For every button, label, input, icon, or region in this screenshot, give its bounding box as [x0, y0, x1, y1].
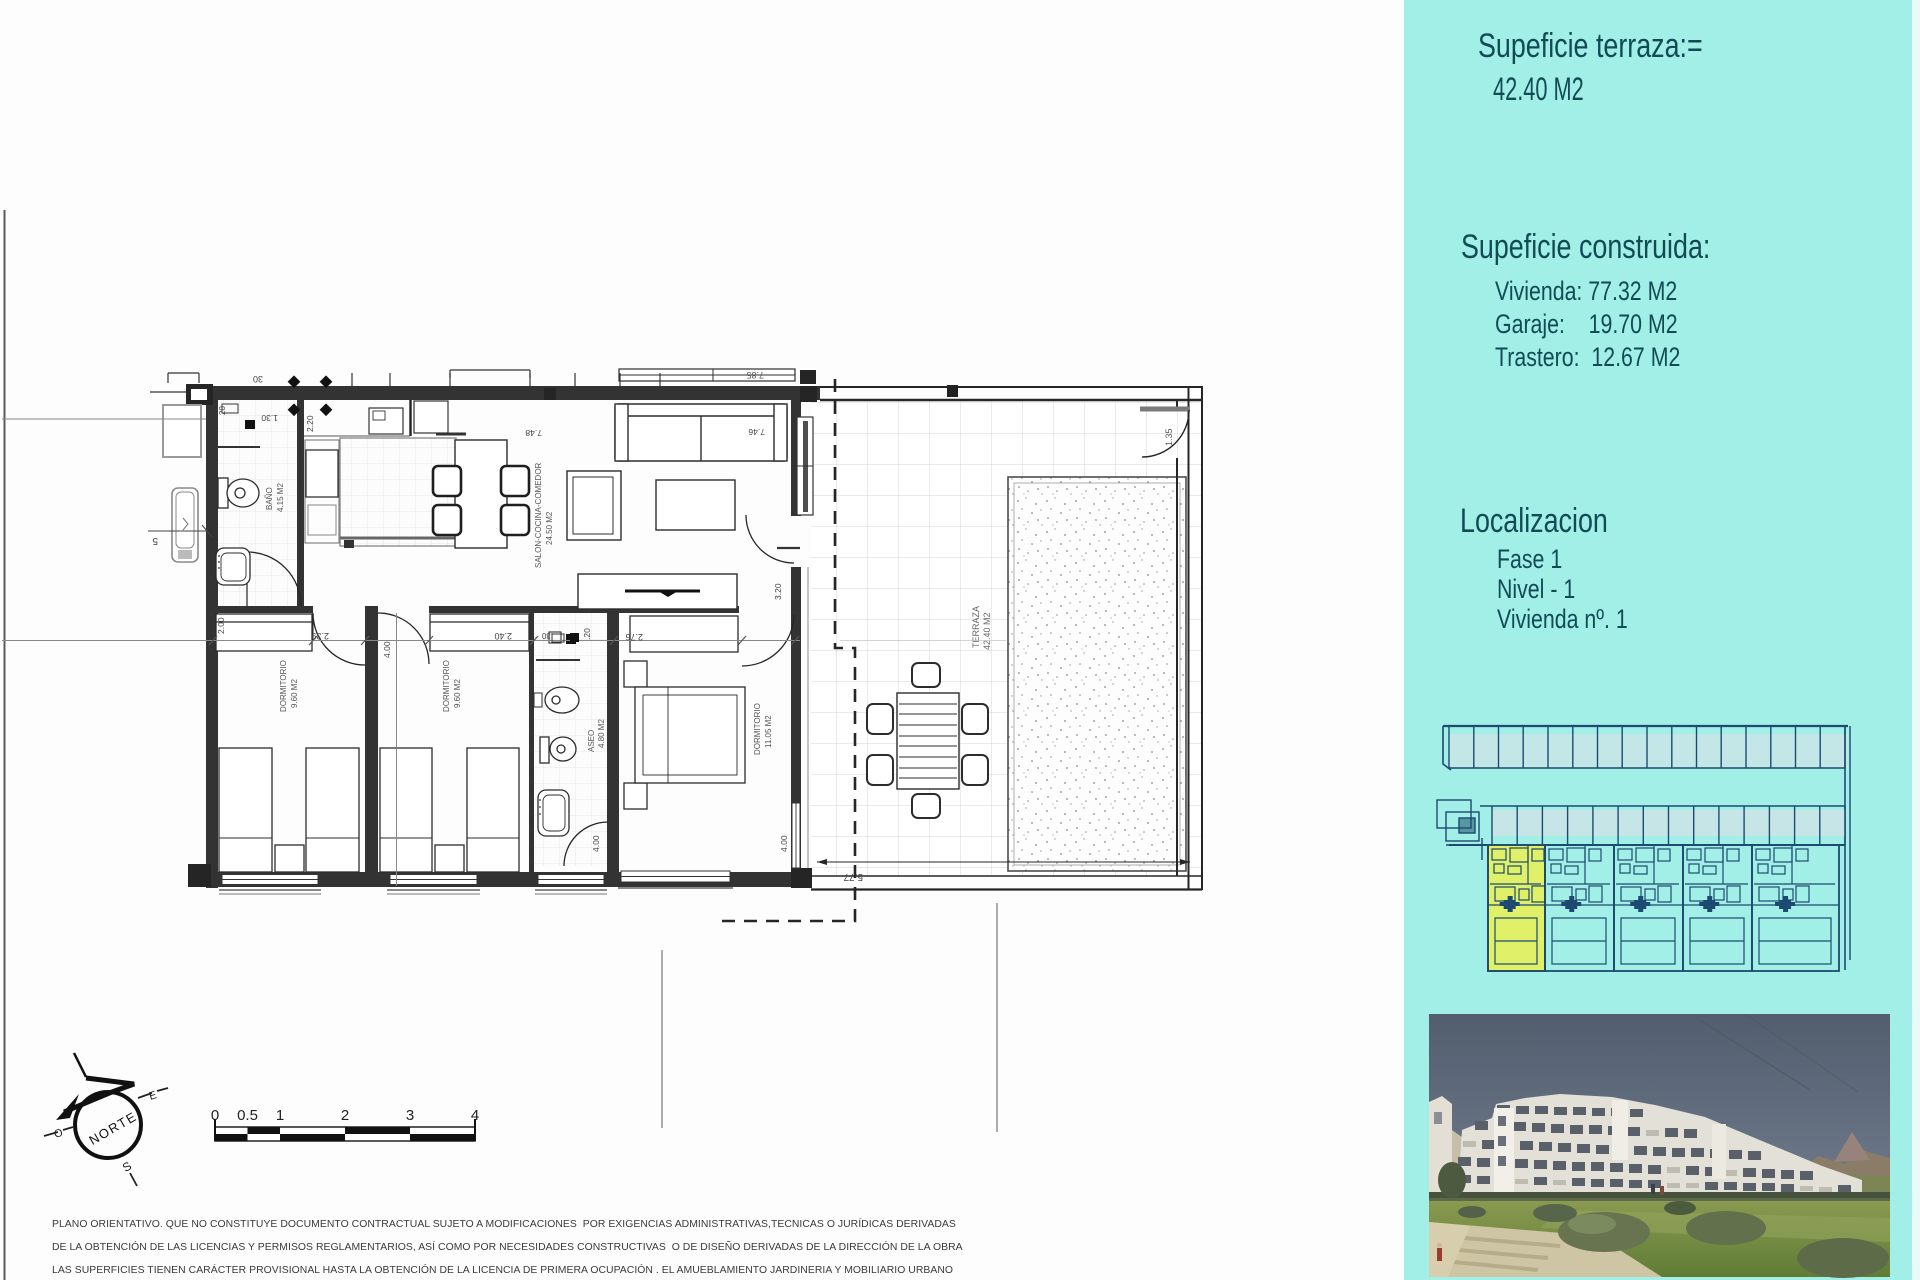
- svg-text:4.00: 4.00: [382, 641, 392, 658]
- svg-text:1: 1: [276, 1107, 284, 1124]
- svg-text:4.00: 4.00: [591, 835, 601, 852]
- svg-text:2.00: 2.00: [216, 617, 226, 634]
- svg-text:30: 30: [253, 374, 263, 384]
- svg-text:E: E: [148, 1089, 159, 1103]
- svg-text:BAÑO: BAÑO: [265, 487, 274, 510]
- svg-text:SALON-COCINA-COMEDOR: SALON-COCINA-COMEDOR: [534, 462, 543, 568]
- svg-text:2.39: 2.39: [311, 631, 329, 641]
- svg-text:DORMITORIO: DORMITORIO: [442, 660, 451, 712]
- svg-text:S: S: [120, 1159, 134, 1175]
- svg-text:DORMITORIO: DORMITORIO: [279, 660, 288, 712]
- svg-text:O: O: [53, 1127, 65, 1141]
- svg-text:7.48: 7.48: [525, 428, 542, 438]
- svg-text:42.40 M2: 42.40 M2: [982, 612, 992, 650]
- svg-text:2.76: 2.76: [625, 632, 643, 642]
- svg-text:1.30: 1.30: [261, 413, 278, 423]
- svg-text:2.20: 2.20: [305, 415, 315, 432]
- svg-text:4.80 M2: 4.80 M2: [597, 719, 606, 748]
- svg-text:0: 0: [211, 1107, 219, 1124]
- svg-text:20: 20: [218, 406, 227, 415]
- svg-text:.30: .30: [541, 631, 553, 640]
- svg-text:7.46: 7.46: [748, 427, 765, 437]
- svg-text:5: 5: [152, 535, 158, 546]
- svg-text:4.00: 4.00: [779, 835, 789, 852]
- svg-text:TERRAZA: TERRAZA: [971, 606, 981, 648]
- svg-text:3.20: 3.20: [773, 583, 783, 600]
- svg-text:NORTE: NORTE: [86, 1109, 139, 1148]
- svg-text:3: 3: [406, 1107, 414, 1124]
- svg-text:11.05 M2: 11.05 M2: [764, 715, 773, 748]
- svg-text:ASEO: ASEO: [587, 730, 596, 752]
- svg-text:24.50 M2: 24.50 M2: [545, 511, 554, 545]
- svg-text:DORMITORIO: DORMITORIO: [753, 703, 762, 755]
- svg-text:9.60 M2: 9.60 M2: [453, 679, 462, 708]
- svg-text:2.40: 2.40: [494, 631, 512, 641]
- svg-text:1.35: 1.35: [1164, 428, 1174, 446]
- svg-text:.20: .20: [582, 628, 592, 640]
- svg-text:0.5: 0.5: [237, 1107, 258, 1124]
- svg-text:2: 2: [341, 1107, 349, 1124]
- svg-text:4.15 M2: 4.15 M2: [276, 483, 285, 512]
- svg-text:5.77: 5.77: [843, 871, 863, 882]
- svg-text:9.60 M2: 9.60 M2: [290, 679, 299, 708]
- svg-text:4: 4: [471, 1107, 479, 1124]
- svg-text:7.85: 7.85: [746, 370, 764, 380]
